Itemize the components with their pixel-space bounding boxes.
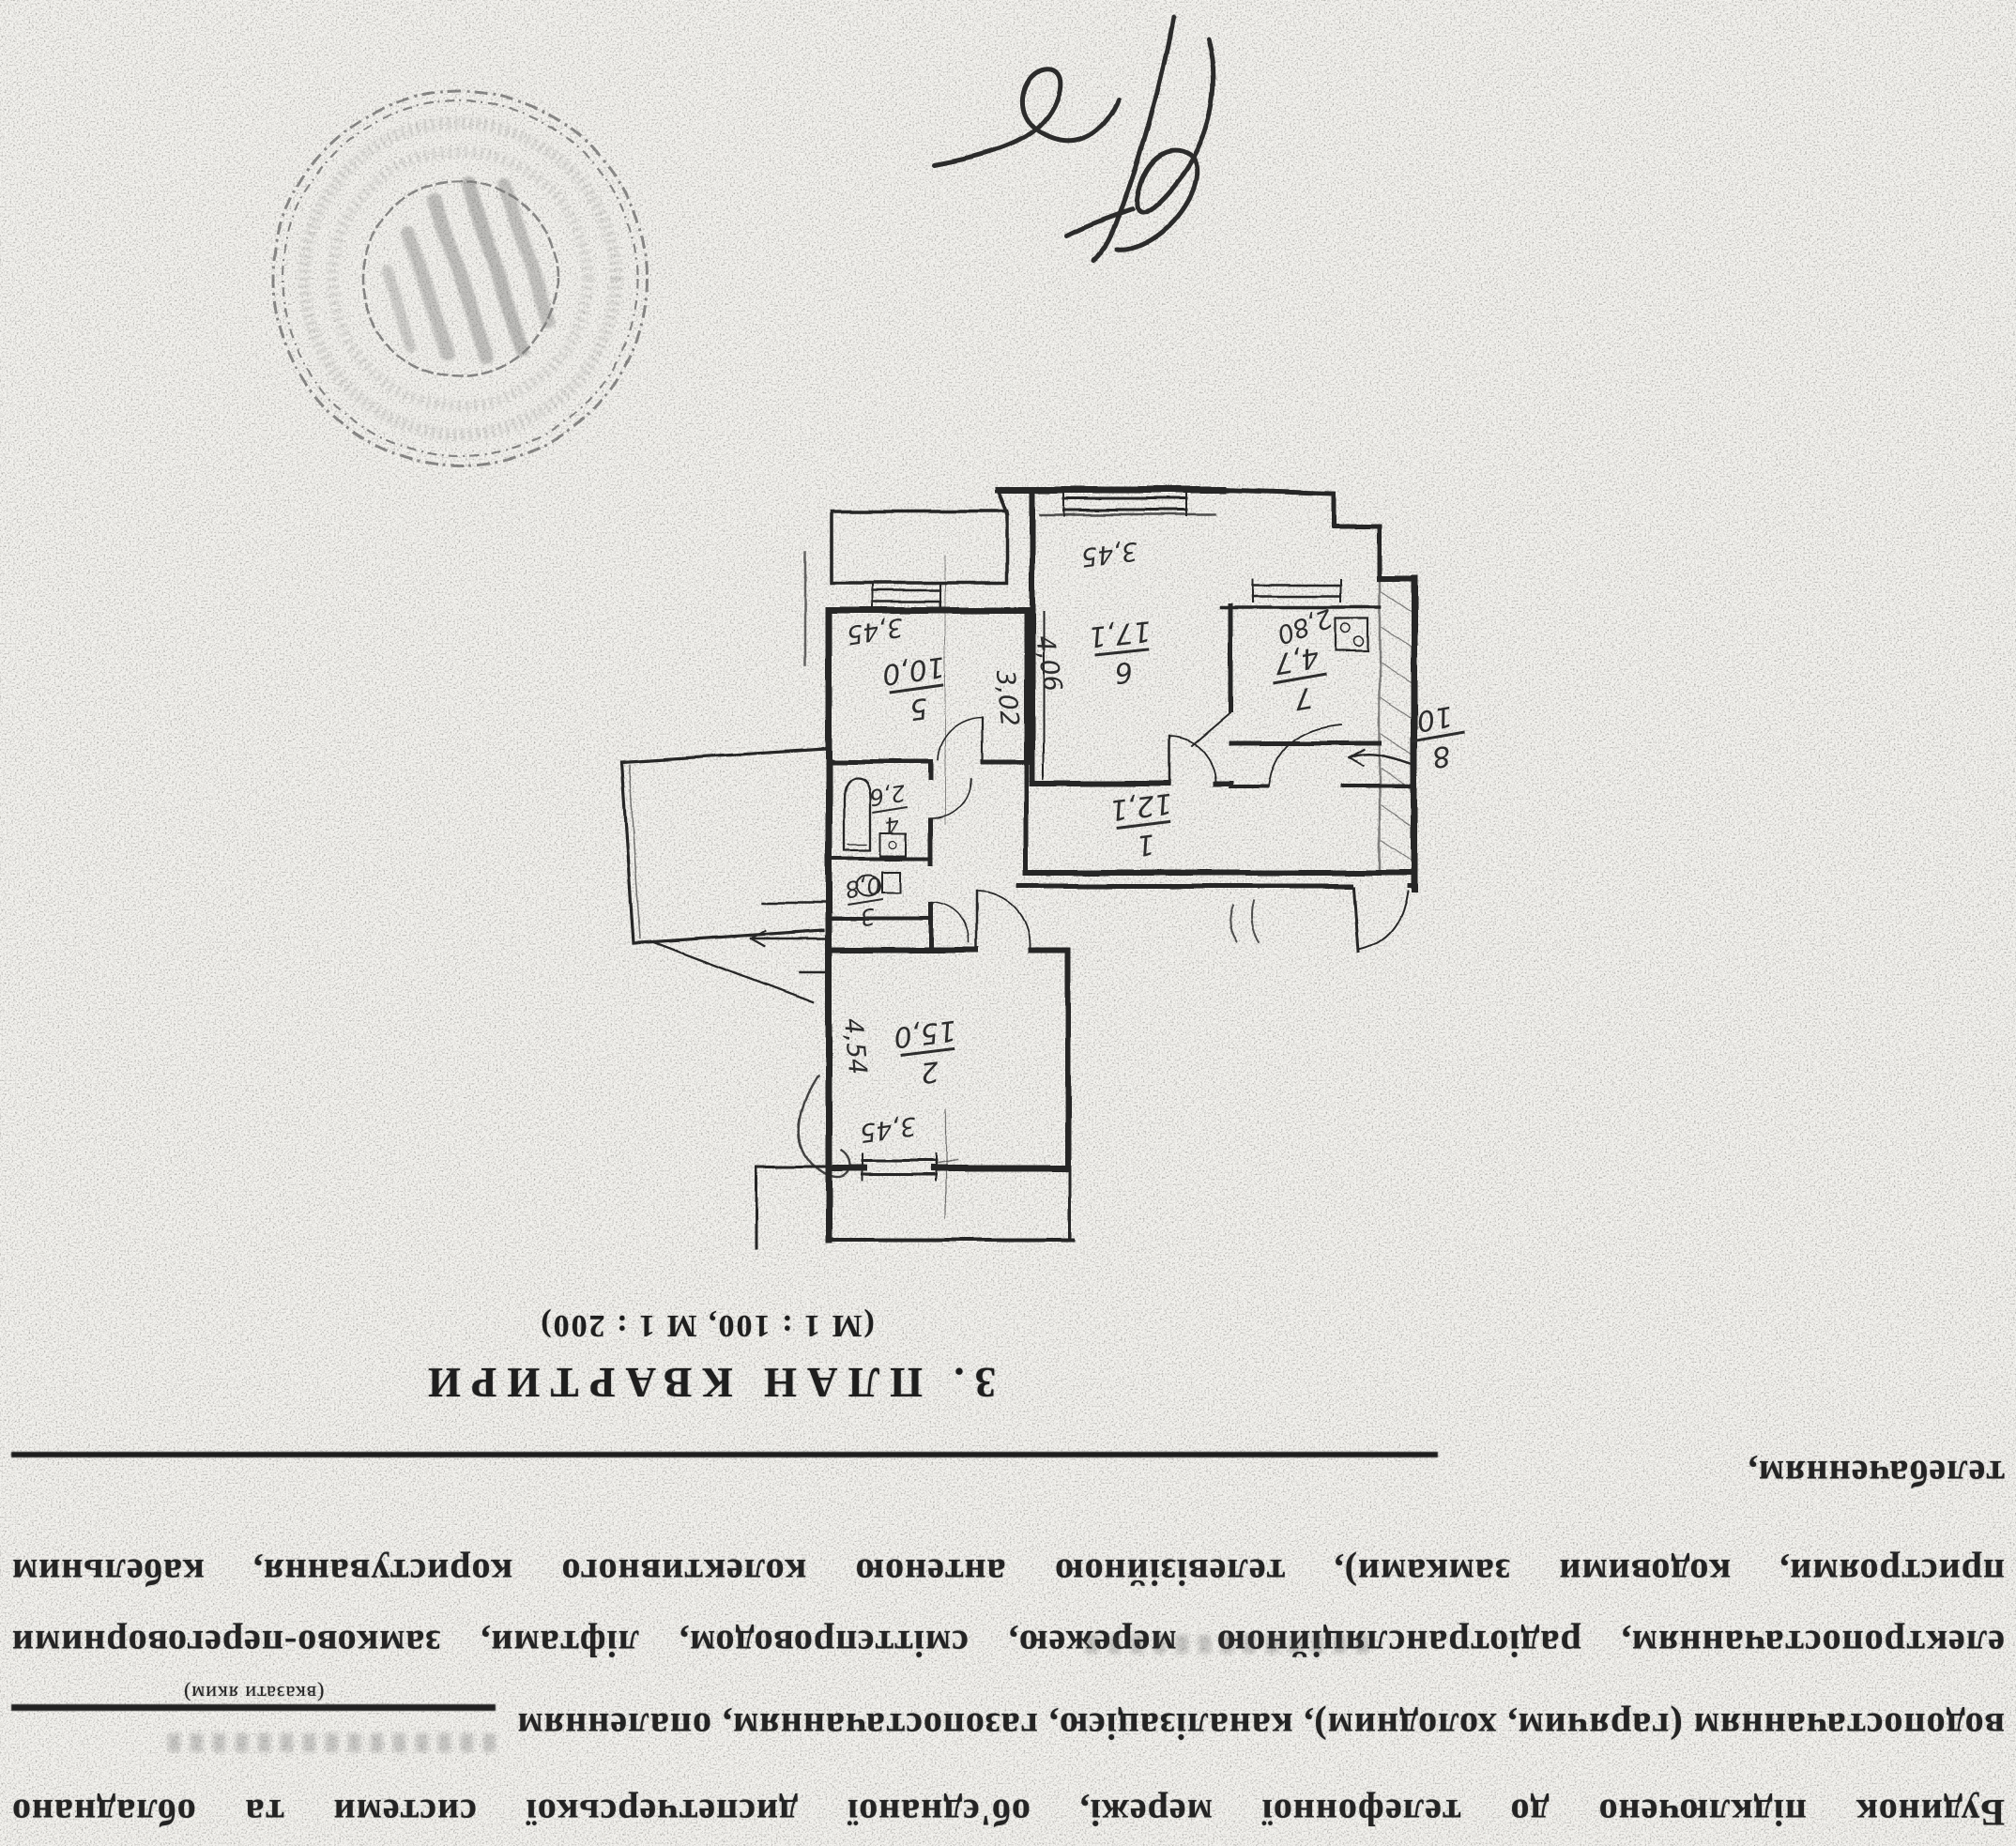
- room6-number: 6: [1113, 656, 1134, 686]
- room2-number: 2: [919, 1056, 940, 1086]
- room2-label: 2 15,0: [893, 1015, 963, 1090]
- specify-hint: (вказати яким): [183, 1681, 324, 1705]
- kitchen-number: 7: [1292, 682, 1315, 713]
- room6-dim-length: 4,06: [1030, 633, 1067, 694]
- room2-dim-length: 4,54: [838, 1017, 872, 1076]
- scale-note: (М 1 : 100, М 1 : 200): [383, 1307, 1031, 1343]
- section-title-block: 3. ПЛАН КВАРТИРИ (М 1 : 100, М 1 : 200): [383, 1307, 1031, 1407]
- bath-number: 4: [883, 813, 901, 837]
- bleed-through-smudge: [167, 1733, 496, 1752]
- wc-area: 0,8: [844, 873, 882, 901]
- kitchen-label: 7 4,7: [1267, 641, 1332, 716]
- room2-area: 15,0: [893, 1015, 958, 1051]
- entry-mark-label: 8 10: [1405, 699, 1470, 774]
- document-content-rotated: Будинок підключено до телефонної мережі,…: [0, 0, 2016, 1846]
- entry-mark-bottom: 10: [1414, 701, 1455, 735]
- room5-number: 5: [908, 693, 929, 723]
- entry-mark-top: 8: [1430, 740, 1453, 771]
- corridor-number: 1: [1135, 829, 1156, 859]
- tv-underline: [11, 1452, 1438, 1499]
- corridor-label: 1 12,1: [1108, 788, 1179, 862]
- room5-label: 5 10,0: [880, 651, 952, 726]
- paragraph-line-devices: пристроями, кодовими замками), телевізій…: [11, 1550, 2005, 1594]
- room6-label: 6 17,1: [1087, 616, 1156, 689]
- section-title: 3. ПЛАН КВАРТИРИ: [383, 1358, 1031, 1407]
- room5-area: 10,0: [880, 651, 946, 688]
- wc-label: 3 0,8: [844, 873, 887, 930]
- wc-number: 3: [859, 905, 877, 929]
- paragraph-line-tv: телебаченням,: [11, 1452, 2005, 1499]
- bath-label: 4 2,6: [868, 781, 911, 838]
- corridor-area: 12,1: [1108, 788, 1174, 824]
- room2-dim-width: 3,45: [858, 1110, 918, 1147]
- paragraph-line-building: Будинок підключено до телефонної мережі,…: [11, 1791, 2005, 1835]
- bleed-through-smudge: [1077, 1635, 1368, 1654]
- kitchen-area: 4,7: [1272, 642, 1321, 678]
- room6-area: 17,1: [1087, 616, 1153, 650]
- bath-area: 2,6: [868, 781, 907, 809]
- scanned-document-page: Будинок підключено до телефонної мережі,…: [0, 0, 2016, 1846]
- tv-text: телебаченням,: [1748, 1452, 2005, 1496]
- room5-dim-length: 3,02: [990, 669, 1024, 728]
- paragraph-line-electric: електропостачанням, радіотрансляційною м…: [11, 1622, 2005, 1666]
- room6-dim-width: 3,45: [1079, 536, 1138, 572]
- utilities-text: водопостачанням (гарячим, холодним), кан…: [516, 1704, 2005, 1748]
- room5-dim-width: 3,45: [845, 612, 905, 649]
